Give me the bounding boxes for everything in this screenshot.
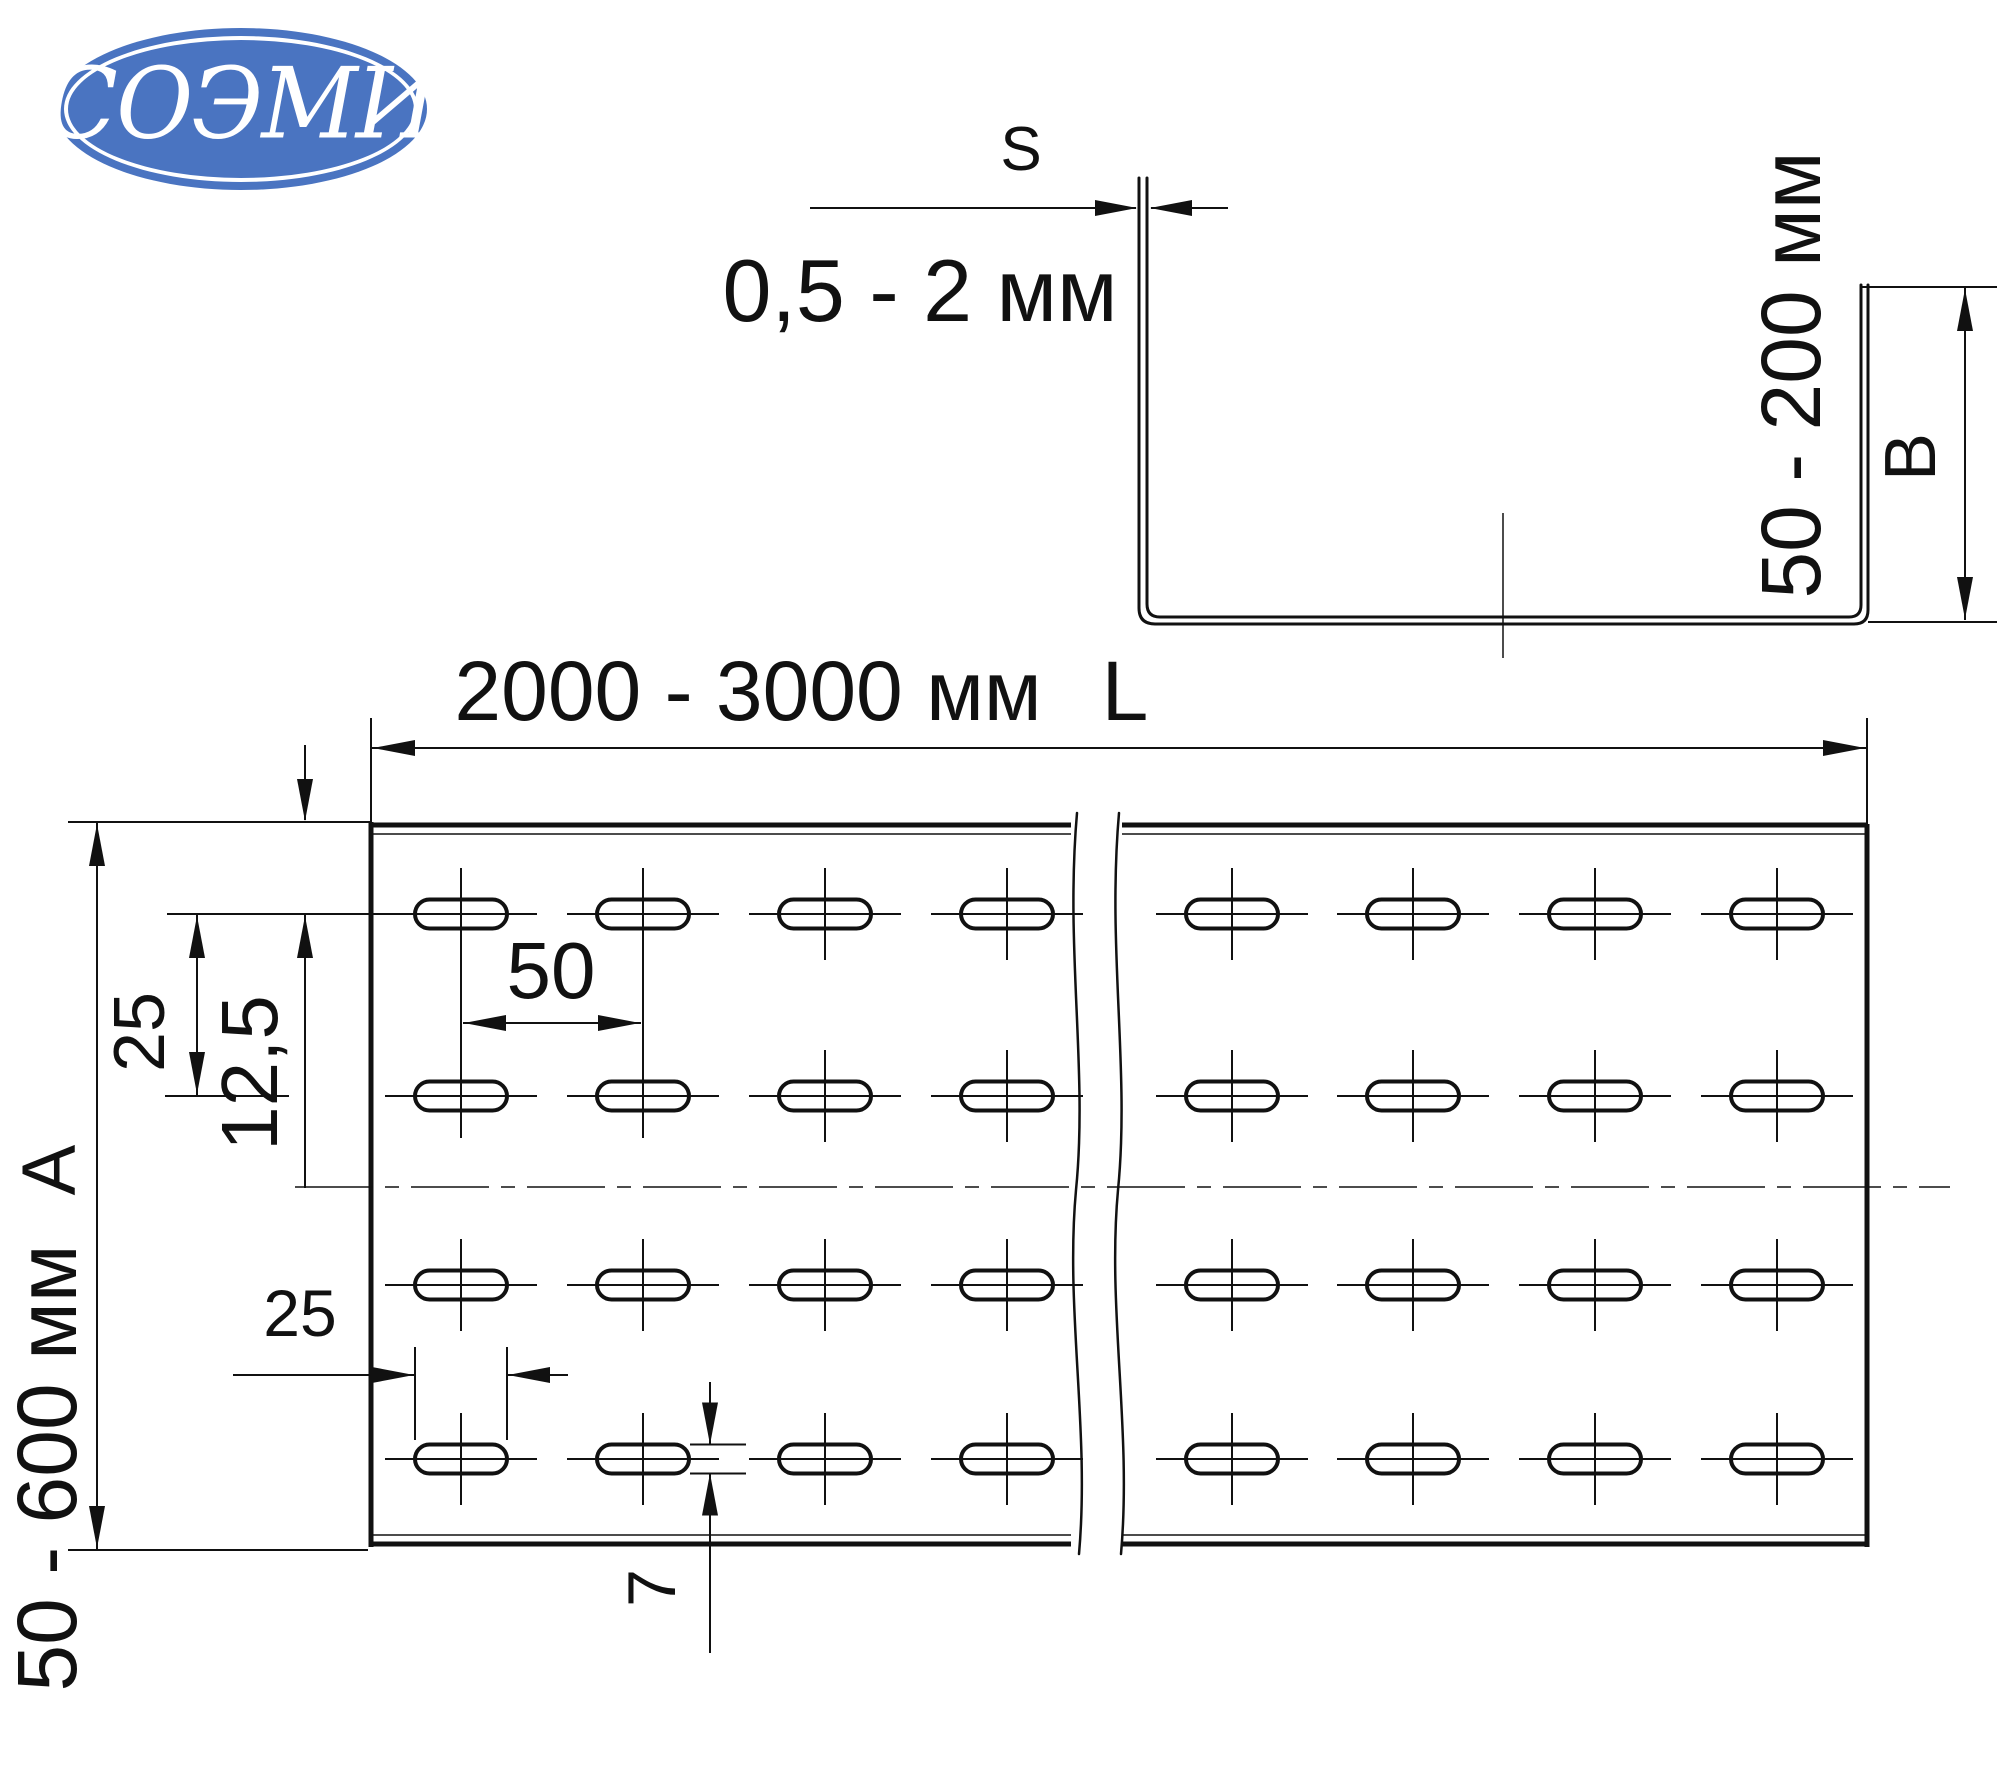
s-arrowhead (1095, 200, 1137, 216)
b-arrowhead (1957, 577, 1973, 619)
row-offset-arrowhead (297, 916, 313, 958)
b-arrowhead (1957, 289, 1973, 331)
break-line (1073, 813, 1082, 1554)
company-logo: СОЭМИ (55, 28, 427, 190)
height-range-label: 50 - 200 мм (1749, 151, 1833, 598)
hole-spacing-arrowhead (464, 1015, 506, 1031)
logo-text: СОЭМИ (46, 47, 436, 161)
l-arrowhead (373, 740, 415, 756)
a-arrowhead (89, 824, 105, 866)
hole-spacing-arrowhead (598, 1015, 640, 1031)
slot-width-arrowhead (702, 1403, 718, 1445)
slot-length-label: 25 (263, 1280, 336, 1346)
length-symbol-label: L (1102, 649, 1149, 733)
hole-spacing-label: 50 (507, 931, 596, 1011)
slot-width-arrowhead (702, 1474, 718, 1516)
slot-length-arrowhead (508, 1367, 550, 1383)
slot-length-arrowhead (372, 1367, 414, 1383)
s-arrowhead (1150, 200, 1192, 216)
height-symbol-label: B (1875, 433, 1947, 481)
row-spacing-arrowhead (189, 1052, 205, 1094)
break-line (1115, 813, 1124, 1554)
width-range-label: 50 - 600 мм (5, 1244, 89, 1691)
length-range-label: 2000 - 3000 мм (454, 649, 1041, 733)
row-spacing-label: 25 (104, 992, 176, 1072)
slot-width-label: 7 (618, 1569, 686, 1607)
thickness-range-label: 0,5 - 2 мм (723, 247, 1118, 335)
row-spacing-arrowhead (189, 916, 205, 958)
width-symbol-label: A (12, 1145, 88, 1196)
l-arrowhead (1823, 740, 1865, 756)
drawing-page: СОЭМИ S 0,5 - 2 мм 50 - 200 мм B 2000 - … (0, 0, 2000, 1771)
row-offset-arrowhead (297, 779, 313, 821)
thickness-symbol-label: S (1000, 119, 1041, 181)
row-offset-label: 12,5 (210, 995, 290, 1151)
